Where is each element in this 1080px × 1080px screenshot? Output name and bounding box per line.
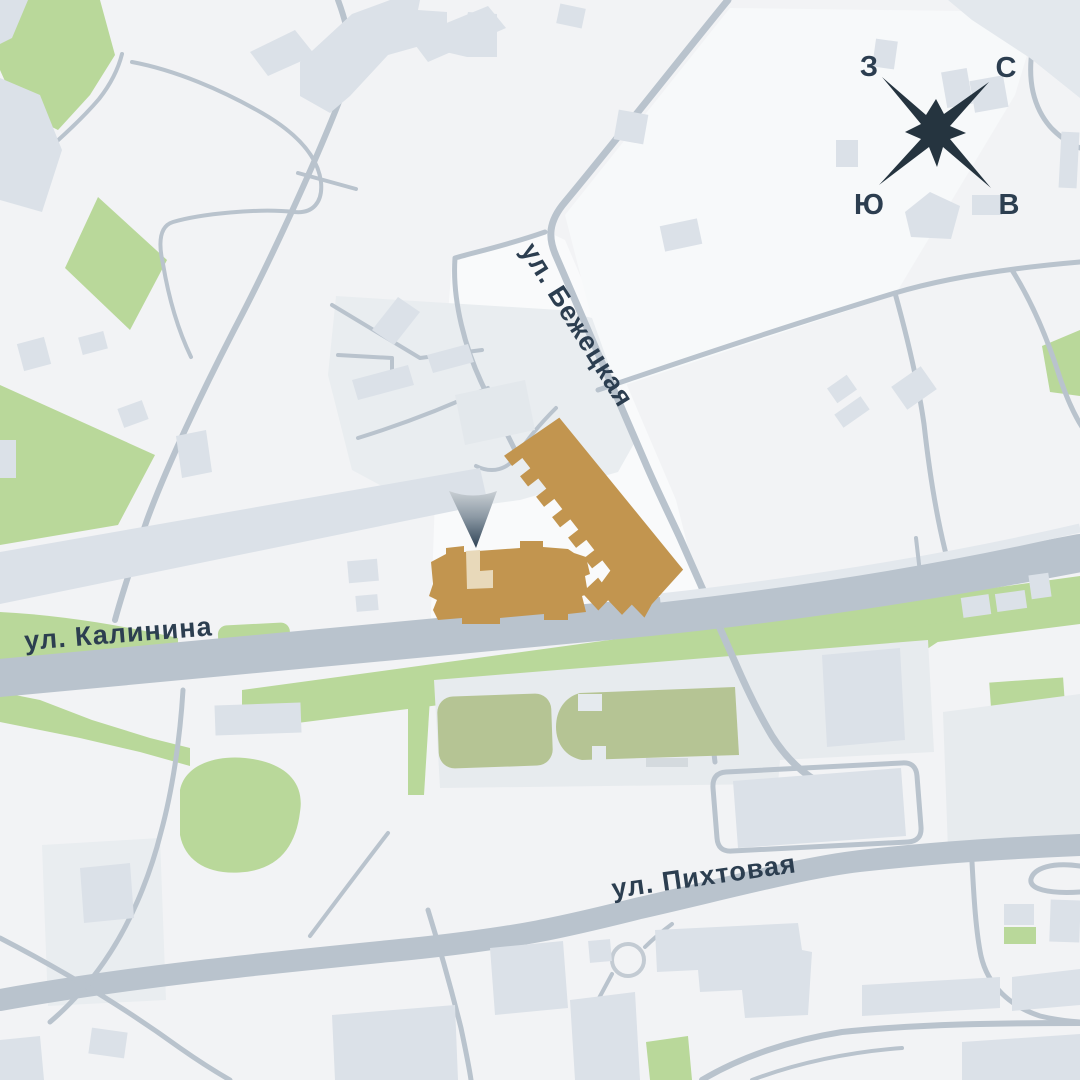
compass-west-label: З [860,51,878,83]
park-small-1 [1004,927,1036,944]
map-svg: ул. Бежецкая ул. Калинина ул. Пихтовая З… [0,0,1080,1080]
highlight-building-low [429,541,590,624]
stadium-building [822,648,905,747]
compass-east-label: В [999,189,1020,221]
compass-south-label: Ю [854,189,884,221]
compass-north-label: С [996,52,1017,84]
loop-building [733,768,906,848]
park-bottom-small [646,1036,692,1080]
right-platform [943,694,1080,850]
district-map[interactable]: ул. Бежецкая ул. Калинина ул. Пихтовая З… [0,0,1080,1080]
